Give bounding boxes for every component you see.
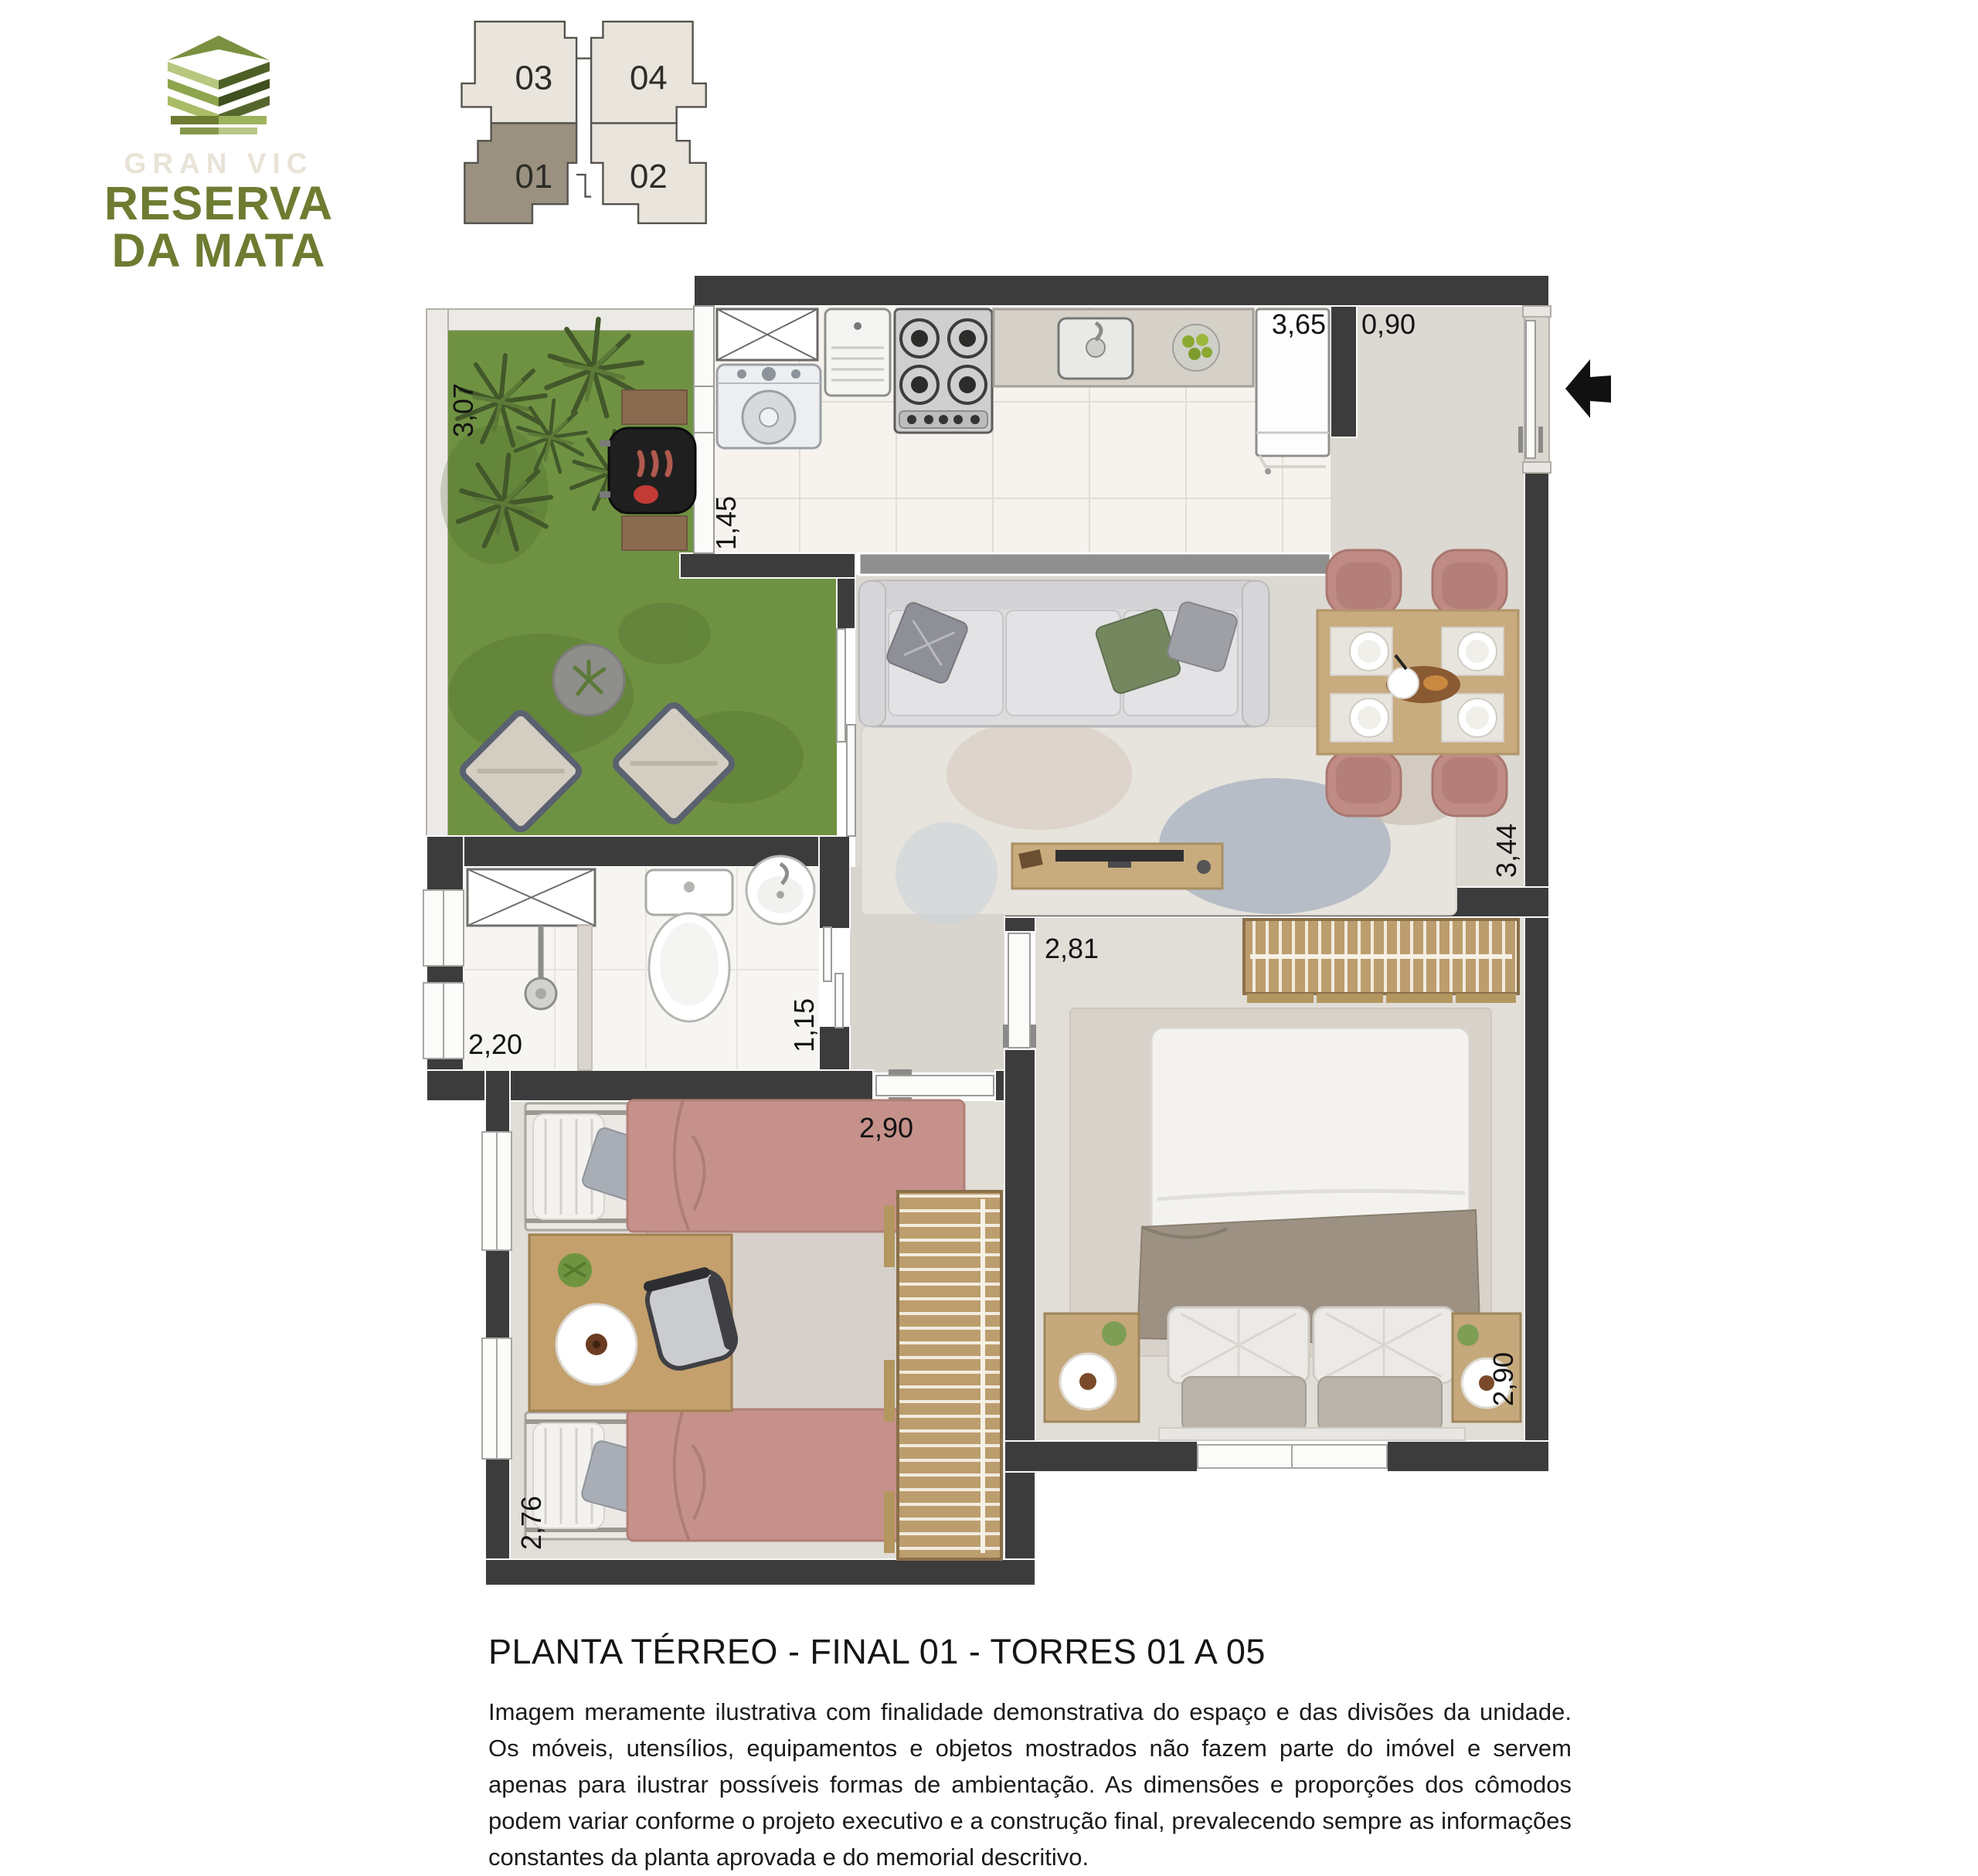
dim-garden: 3,07 [447,383,479,437]
wardrobe-icon [884,1191,1001,1559]
laundry-sink-icon [825,309,890,396]
sofa-icon [859,581,1269,726]
bathroom-door [824,927,831,981]
dim-bedroom2-depth: 2,76 [515,1496,547,1550]
fruit-bowl-icon [1173,325,1219,371]
washing-machine-icon [717,365,821,448]
entry-door-lintel [1523,306,1551,317]
dim-kitchen: 3,65 [1272,308,1326,340]
entry-arrow-icon [1565,359,1611,418]
toilet-icon [646,870,732,1021]
floor-plan: 3,07 3,65 0,90 1,45 3,44 2,20 1,15 2,81 … [0,0,1978,1864]
living-garden-door [837,629,845,742]
dim-bath-depth: 1,15 [788,998,820,1052]
bedroom-2 [525,1100,1001,1559]
tv-icon [1055,850,1184,862]
dim-living: 3,44 [1490,824,1522,878]
dim-bedroom2-width: 2,90 [859,1112,913,1144]
stove-icon [895,309,992,433]
plan-title: PLANTA TÉRREO - FINAL 01 - TORRES 01 A 0… [488,1632,1572,1672]
kitchen-counter [994,309,1253,386]
bedroom2-door [876,1076,994,1096]
bbq-bench [622,516,687,550]
caption-block: PLANTA TÉRREO - FINAL 01 - TORRES 01 A 0… [488,1632,1572,1876]
dim-bedroom1-depth: 2,90 [1487,1352,1519,1406]
kitchen-peninsula-counter [859,553,1331,575]
wardrobe-icon [1244,919,1518,1003]
bathroom-sink-icon [746,856,814,924]
dim-kitchen-door: 1,45 [710,496,742,550]
bbq-bench [622,390,687,424]
dim-bedroom1-width: 2,81 [1045,933,1099,964]
tv-stand-icon [1012,844,1222,889]
bedroom1-door [1008,933,1030,1048]
desk-icon [529,1235,740,1411]
entry-door [1526,321,1535,458]
dim-entry: 0,90 [1361,308,1416,340]
dim-bath-width: 2,20 [468,1028,522,1060]
plan-disclaimer: Imagem meramente ilustrativa com finalid… [488,1694,1572,1876]
